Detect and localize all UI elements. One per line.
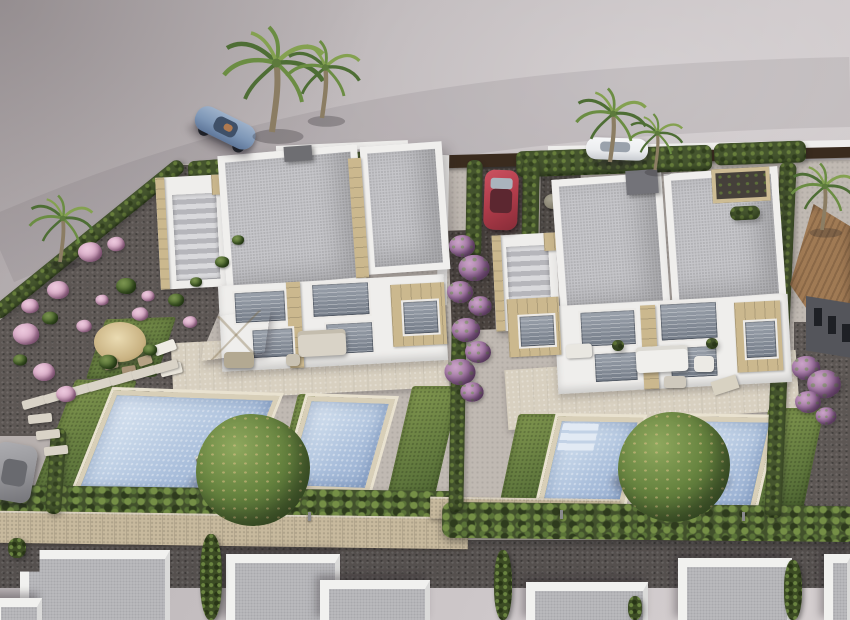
villa1-roof-vent (284, 145, 313, 162)
pink-flower-bush (132, 307, 149, 321)
villa2-side-wing-window (743, 319, 779, 361)
villa2-terrace-planter-1 (612, 340, 624, 351)
garden-tree-villa2 (618, 412, 730, 522)
neighbour-window-slit-2 (828, 316, 836, 334)
green-shrub (215, 256, 229, 267)
car-red (479, 165, 525, 236)
purple-bougainvillea-puff (458, 255, 489, 281)
villa1-dining-set (224, 352, 254, 368)
green-shrub (99, 355, 117, 369)
garden-light-1 (308, 512, 311, 521)
aerial-render-scene (0, 0, 850, 620)
villa1-outdoor-sofa (297, 329, 346, 357)
cypress-bush (200, 534, 222, 620)
neighbour-window-slit-1 (814, 308, 822, 326)
bottom-row-building (824, 554, 850, 620)
villa1-window-upper-right (310, 280, 372, 319)
villa2-window-lower-left (592, 350, 640, 384)
purple-bougainvillea-puff (465, 341, 491, 363)
green-shrub (13, 354, 27, 365)
cypress-bush (494, 550, 512, 620)
green-shrub (168, 294, 184, 307)
purple-bougainvillea-puff (468, 296, 491, 316)
palm-tree (623, 108, 690, 178)
villa1-tub-chair (286, 354, 300, 366)
villa1-stair-terrace (155, 174, 229, 289)
cypress-bush (784, 560, 802, 620)
cypress-bush (8, 538, 26, 558)
villa2-left-wing-stone (507, 297, 562, 358)
green-shrub (42, 312, 58, 325)
villa1-roof-left (217, 144, 366, 296)
villa2-armchair (694, 356, 714, 372)
villa2-terrace-planter-2 (706, 338, 718, 349)
purple-bougainvillea-puff (816, 407, 837, 425)
purple-bougainvillea-puff (452, 318, 481, 342)
villa2-left-wing-window (517, 313, 557, 349)
pink-flower-bush (107, 237, 125, 251)
villa2-window-upper-right (658, 300, 720, 343)
pink-flower-bush (76, 320, 91, 333)
car-red-roof (490, 189, 513, 214)
villa2-roof-left (551, 172, 670, 317)
purple-bougainvillea-puff (460, 382, 483, 402)
pool-steps (557, 423, 599, 452)
garden-tree-villa1 (196, 414, 310, 526)
green-shrub (190, 277, 202, 287)
villa1-side-wing-window (401, 298, 441, 336)
pink-flower-bush (56, 386, 76, 402)
green-shrub (232, 235, 244, 245)
cypress-bush (628, 596, 642, 620)
palm-tree (22, 188, 102, 272)
pink-flower-bush (95, 295, 108, 306)
palm-tree (278, 32, 370, 129)
villa2-side-wing-stone (734, 300, 784, 372)
bottom-row-building (320, 580, 430, 620)
villa2-coffee-table (664, 376, 686, 388)
villa1-exterior-stairs (172, 193, 220, 281)
villa1-roof-right (360, 141, 451, 274)
pink-flower-bush (141, 291, 154, 302)
neighbour-dark-wall (806, 296, 850, 358)
villa1-side-wing-stone (390, 282, 447, 347)
pink-flower-bush (47, 281, 69, 299)
villa2-roof-terrace-dark (711, 167, 771, 204)
pink-flower-bush (13, 323, 39, 345)
purple-bougainvillea-puff (449, 235, 475, 257)
neighbour-window-slit-3 (842, 324, 850, 342)
bottom-row-building (20, 550, 170, 620)
pink-flower-bush (33, 363, 55, 381)
pink-flower-bush (183, 316, 197, 328)
garden-light-2 (560, 510, 563, 519)
palm-tree (784, 156, 850, 240)
villa2-outdoor-sofa (635, 345, 688, 374)
garden-light-3 (742, 512, 745, 521)
pink-flower-bush (21, 299, 39, 313)
green-shrub (116, 278, 136, 294)
car-gray-roof (0, 458, 28, 488)
green-shrub (143, 344, 157, 355)
car-red-windshield (490, 178, 512, 190)
bottom-row-building (0, 598, 42, 620)
bottom-row-building (678, 558, 792, 620)
villa2-roof-planter (730, 205, 761, 221)
villa2-lounger (566, 343, 593, 358)
